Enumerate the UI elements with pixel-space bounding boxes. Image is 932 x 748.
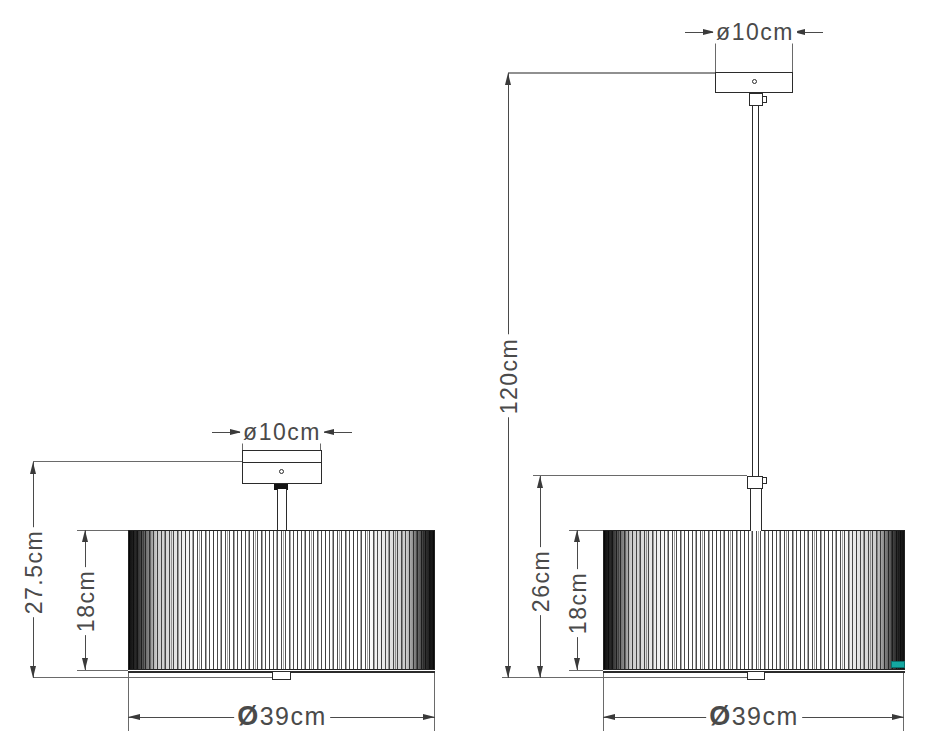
arrowhead [537, 666, 543, 678]
arrowhead [505, 73, 511, 85]
right-shade-diameter-label: Ø39cm [706, 703, 802, 730]
extension-line [33, 677, 272, 678]
extension-line [533, 475, 747, 476]
left-overall-height-label: 27.5cm [23, 527, 46, 617]
extension-line [569, 670, 603, 671]
diameter-symbol: Ø [237, 701, 260, 731]
left-pleated-drum-shade [128, 530, 435, 670]
left-shade-height-label: 18cm [75, 567, 98, 635]
extension-line [128, 673, 129, 731]
right-canopy-diameter-label: ø10cm [713, 21, 797, 44]
arrowhead [537, 476, 543, 488]
left-bottom-finial [272, 671, 291, 680]
extension-line [903, 673, 904, 731]
extension-line [434, 673, 435, 731]
arrowhead [892, 714, 904, 720]
coupling-locking-pin [762, 477, 767, 484]
arrowhead [82, 658, 88, 670]
connector-locking-pin [762, 96, 767, 103]
extension-line [603, 673, 604, 731]
diameter-value: 39cm [732, 702, 799, 730]
right-bottom-finial [747, 671, 765, 680]
rod-connector [749, 93, 763, 106]
extension-line [33, 461, 242, 462]
arrowhead [423, 714, 435, 720]
diameter-symbol: Ø [709, 701, 732, 731]
arrowhead [30, 666, 36, 678]
ceiling-reference-line [508, 72, 716, 74]
arrowhead [128, 714, 140, 720]
right-body-height-label: 26cm [530, 547, 553, 615]
arrowhead [82, 530, 88, 542]
canopy-screw [752, 79, 757, 84]
left-canopy-diameter-label: ø10cm [240, 421, 324, 444]
left-support-rod [277, 489, 287, 531]
left-shade-diameter-label: Ø39cm [234, 703, 330, 730]
arrowhead [30, 462, 36, 474]
rod-coupling [747, 476, 763, 489]
extension-line [77, 670, 128, 671]
right-pleated-drum-shade [603, 530, 905, 670]
arrowhead [574, 530, 580, 542]
left-ceiling-canopy [242, 450, 322, 484]
arrowhead [574, 658, 580, 670]
diameter-value: 39cm [260, 702, 327, 730]
canopy-screw [279, 469, 284, 474]
arrowhead [603, 714, 615, 720]
lamp-dimension-drawing: ø10cm 27.5cm 18cm [0, 0, 932, 748]
right-suspension-height-label: 120cm [498, 335, 521, 418]
shade-stem [750, 489, 762, 531]
right-shade-height-label: 18cm [567, 569, 590, 637]
arrowhead [505, 666, 511, 678]
canopy-ceiling-line [242, 462, 322, 463]
shade-tag [891, 661, 905, 668]
right-suspension-rod [752, 106, 759, 477]
